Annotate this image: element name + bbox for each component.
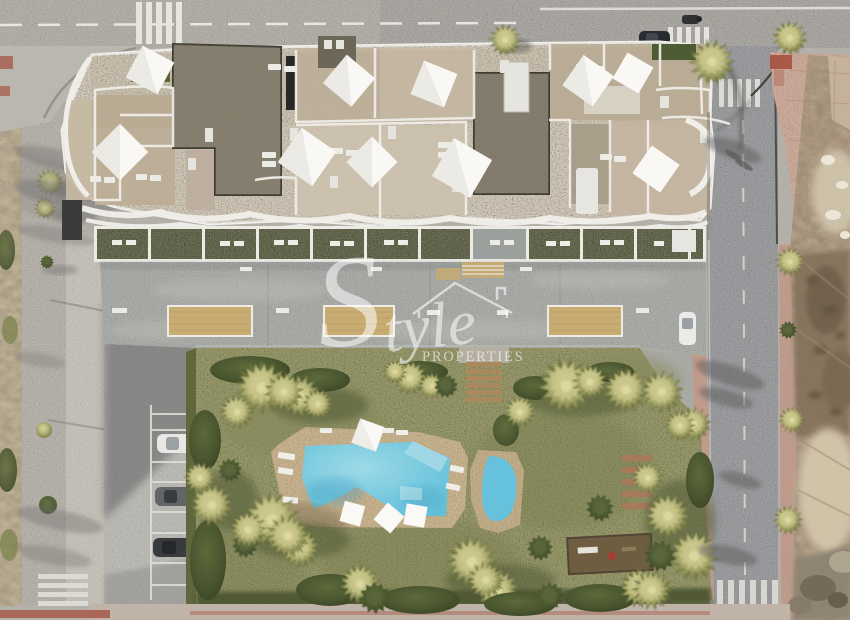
svg-text:PROPERTIES: PROPERTIES — [422, 349, 525, 365]
